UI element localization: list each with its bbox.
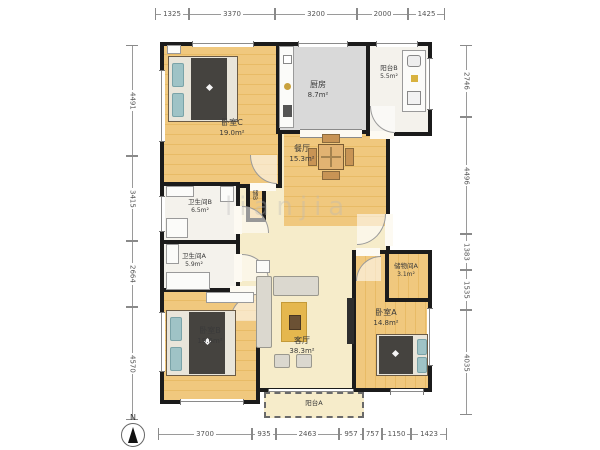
dimension-left-3: 2664 — [126, 241, 138, 307]
window-balcony-b-top — [376, 41, 418, 47]
label-bathroom-b: 卫生间B6.5m² — [168, 198, 232, 215]
dimension-right-4: 1535 — [460, 270, 472, 310]
label-bedroom-c: 卧室C19.0m² — [200, 118, 264, 138]
dimension-bottom-3: 2463 — [276, 428, 339, 440]
washer-balcony-b — [402, 50, 426, 112]
window-bathroom-b-left — [159, 196, 165, 232]
dimension-left-4: 4570 — [126, 307, 138, 420]
window-kitchen-top — [298, 41, 348, 47]
dimension-right-5: 4035 — [460, 310, 472, 415]
dining-chair-south — [322, 171, 340, 180]
label-dining: 餐厅15.3m² — [272, 144, 332, 164]
dimension-bottom-6: 1150 — [382, 428, 411, 440]
label-bedroom-b: 卧室B19.6m² — [178, 326, 242, 346]
north-compass: N — [120, 414, 146, 447]
dimension-top-1: 1325 — [155, 8, 189, 20]
north-label: N — [120, 414, 146, 422]
bed-bedroom-c — [168, 56, 238, 122]
dimension-bottom-2: 935 — [252, 428, 276, 440]
dimension-top-4: 2000 — [357, 8, 408, 20]
dimension-bottom-5: 757 — [363, 428, 382, 440]
floor-plan-canvas: 1325 3370 3200 2000 1425 3700 935 2463 9… — [0, 0, 600, 450]
label-kitchen: 厨房8.7m² — [288, 80, 348, 100]
dining-chair-north — [322, 134, 340, 143]
tv-unit — [347, 298, 354, 344]
bed-bedroom-a — [376, 334, 428, 376]
dimension-right-2: 4496 — [460, 117, 472, 234]
north-arrow-icon — [128, 427, 138, 443]
window-bedroom-c-left — [159, 70, 165, 142]
dimension-top-3: 3200 — [275, 8, 357, 20]
dimension-bottom-7: 1423 — [411, 428, 447, 440]
dimension-right-1: 2746 — [460, 45, 472, 117]
label-living: 客厅38.3m² — [272, 336, 332, 356]
balcony-a-label: 阳台A — [305, 397, 322, 407]
sofa-chaise — [256, 276, 272, 348]
label-bathroom-a: 卫生间A5.9m² — [162, 252, 226, 269]
dimension-right-3: 1383 — [460, 234, 472, 270]
washer-bathroom-b — [166, 218, 188, 238]
window-balcony-b-right — [427, 58, 433, 110]
label-storage-a: 储物间A3.1m² — [378, 262, 434, 279]
nightstand-bedroom-c — [167, 45, 181, 54]
label-balcony-b: 阳台B5.5m² — [366, 64, 412, 81]
sofa-back — [273, 276, 319, 296]
compass-circle — [121, 423, 145, 447]
window-bedroom-a-bottom — [390, 389, 424, 395]
room-balcony-a: 阳台A — [264, 392, 364, 418]
dimension-top-5: 1425 — [408, 8, 445, 20]
window-bedroom-b-bottom — [180, 399, 244, 405]
door-gap-bathroom-a — [234, 254, 242, 282]
door-gap-bedroom-a — [356, 248, 380, 256]
watermark: lianjia — [225, 192, 351, 222]
side-table — [256, 260, 270, 273]
bathtub-bathroom-a — [166, 272, 210, 290]
dimension-left-1: 4491 — [126, 45, 138, 156]
label-bedroom-a: 卧室A14.8m² — [356, 308, 416, 328]
dining-chair-east — [345, 148, 354, 166]
dimension-left-2: 3415 — [126, 156, 138, 241]
window-bedroom-b-left — [159, 312, 165, 372]
sink-bathroom-b — [166, 186, 194, 197]
entry-door-gap — [385, 214, 393, 246]
dimension-top-2: 3370 — [189, 8, 275, 20]
window-bedroom-c-top — [192, 41, 254, 47]
dresser-bedroom-b — [206, 292, 254, 303]
dimension-bottom-4: 957 — [339, 428, 363, 440]
dimension-bottom-1: 3700 — [158, 428, 252, 440]
